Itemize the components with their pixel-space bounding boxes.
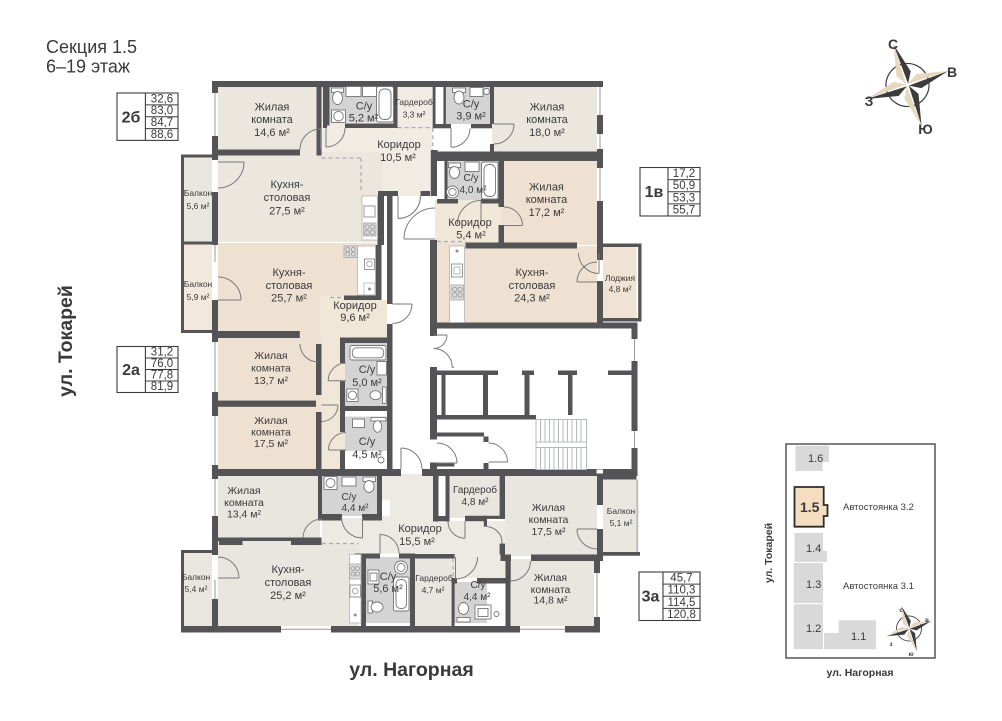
svg-text:1.1: 1.1 [851, 631, 866, 643]
svg-text:2б: 2б [122, 110, 141, 127]
svg-text:120,8: 120,8 [667, 609, 696, 621]
svg-text:Жилая: Жилая [255, 102, 290, 114]
svg-text:комната: комната [251, 363, 291, 375]
svg-text:4,7 м²: 4,7 м² [422, 585, 445, 595]
svg-text:Автостоянка 3.1: Автостоянка 3.1 [843, 581, 914, 592]
svg-text:Ю: Ю [918, 121, 932, 137]
svg-text:Кухня-: Кухня- [515, 267, 548, 279]
svg-text:1.5: 1.5 [800, 499, 820, 515]
svg-text:Гардероб: Гардероб [415, 573, 453, 583]
svg-text:9,6 м²: 9,6 м² [340, 312, 370, 324]
svg-text:в: в [925, 618, 929, 624]
svg-text:столовая: столовая [266, 280, 313, 292]
svg-text:77,8: 77,8 [151, 370, 173, 382]
svg-text:Кухня-: Кухня- [272, 267, 305, 279]
svg-text:81,9: 81,9 [151, 381, 173, 393]
svg-text:13,7 м²: 13,7 м² [254, 375, 289, 387]
svg-text:ул. Токарей: ул. Токарей [763, 523, 775, 583]
svg-text:5,9 м²: 5,9 м² [187, 292, 210, 302]
svg-text:5,6 м²: 5,6 м² [187, 201, 210, 211]
svg-text:Балкон: Балкон [184, 279, 213, 289]
svg-text:3,9 м²: 3,9 м² [456, 111, 486, 123]
svg-text:1.3: 1.3 [806, 579, 821, 591]
svg-text:С/у: С/у [359, 436, 376, 448]
svg-text:55,7: 55,7 [673, 205, 695, 217]
svg-text:ул. Нагорная: ул. Нагорная [349, 659, 473, 681]
svg-text:ю: ю [908, 652, 913, 658]
svg-text:столовая: столовая [264, 192, 311, 204]
svg-text:25,2 м²: 25,2 м² [270, 590, 306, 602]
svg-text:столовая: столовая [265, 577, 312, 589]
svg-text:5,4 м²: 5,4 м² [456, 230, 486, 242]
svg-text:88,6: 88,6 [151, 129, 173, 141]
svg-text:ул. Нагорная: ул. Нагорная [827, 667, 894, 679]
svg-text:Коридор: Коридор [448, 217, 491, 229]
svg-text:1.4: 1.4 [806, 543, 821, 555]
svg-text:1в: 1в [645, 184, 664, 201]
svg-text:Балкон: Балкон [182, 572, 211, 582]
svg-text:Секция 1.5: Секция 1.5 [46, 37, 137, 57]
svg-text:27,5 м²: 27,5 м² [269, 206, 305, 218]
svg-text:32,6: 32,6 [151, 93, 173, 105]
svg-text:10,5 м²: 10,5 м² [380, 152, 416, 164]
svg-text:З: З [865, 93, 874, 109]
svg-text:С/у: С/у [359, 364, 376, 376]
svg-text:17,5 м²: 17,5 м² [254, 438, 289, 450]
svg-text:Гардероб: Гардероб [453, 484, 497, 496]
svg-text:4,0 м²: 4,0 м² [460, 185, 488, 196]
svg-text:столовая: столовая [509, 280, 556, 292]
svg-text:Жилая: Жилая [534, 572, 567, 584]
svg-text:4,8 м²: 4,8 м² [609, 284, 632, 294]
svg-text:Жилая: Жилая [530, 102, 565, 114]
svg-text:Жилая: Жилая [227, 485, 260, 497]
svg-text:С/у: С/у [342, 492, 357, 503]
svg-text:комната: комната [526, 114, 568, 126]
svg-text:комната: комната [224, 497, 264, 509]
svg-text:з: з [890, 642, 893, 648]
svg-text:84,7: 84,7 [151, 117, 173, 129]
svg-text:5,0 м²: 5,0 м² [352, 377, 382, 389]
svg-text:Лоджия: Лоджия [605, 273, 636, 283]
svg-text:Автостоянка 3.2: Автостоянка 3.2 [843, 502, 914, 513]
svg-text:Гардероб: Гардероб [395, 97, 433, 107]
svg-text:18,0 м²: 18,0 м² [529, 127, 565, 139]
svg-text:С/у: С/у [471, 580, 486, 591]
svg-text:31,2: 31,2 [151, 347, 173, 359]
svg-text:С/у: С/у [356, 101, 373, 113]
svg-text:4,4 м²: 4,4 м² [464, 592, 492, 603]
svg-text:14,8 м²: 14,8 м² [533, 595, 568, 607]
svg-text:Коридор: Коридор [398, 523, 441, 535]
svg-text:ул. Токарей: ул. Токарей [55, 285, 77, 397]
svg-text:Балкон: Балкон [184, 188, 213, 198]
svg-text:С/у: С/у [463, 99, 480, 111]
svg-text:2а: 2а [122, 362, 140, 379]
svg-text:комната: комната [529, 514, 569, 526]
svg-text:15,5 м²: 15,5 м² [399, 536, 435, 548]
svg-text:Кухня-: Кухня- [270, 179, 303, 191]
svg-text:3,3 м²: 3,3 м² [403, 110, 426, 120]
svg-text:5,4 м²: 5,4 м² [185, 584, 208, 594]
svg-text:14,6 м²: 14,6 м² [254, 127, 290, 139]
svg-text:6–19 этаж: 6–19 этаж [46, 57, 130, 77]
svg-text:Балкон: Балкон [607, 506, 636, 516]
svg-text:50,9: 50,9 [673, 180, 695, 192]
svg-text:13,4 м²: 13,4 м² [227, 509, 262, 521]
svg-text:5,6 м²: 5,6 м² [373, 583, 403, 595]
svg-text:Коридор: Коридор [377, 139, 420, 151]
svg-text:комната: комната [251, 427, 291, 439]
svg-text:53,3: 53,3 [673, 192, 695, 204]
svg-text:24,3 м²: 24,3 м² [514, 293, 550, 305]
svg-text:4,4 м²: 4,4 м² [342, 503, 370, 514]
svg-text:76,0: 76,0 [151, 358, 173, 370]
svg-text:Жилая: Жилая [254, 350, 287, 362]
svg-text:17,2 м²: 17,2 м² [529, 207, 565, 219]
svg-text:3а: 3а [642, 589, 660, 606]
svg-text:83,0: 83,0 [151, 105, 173, 117]
svg-text:4,8 м²: 4,8 м² [462, 497, 490, 508]
svg-text:5,2 м²: 5,2 м² [349, 113, 379, 125]
svg-text:1.2: 1.2 [806, 623, 821, 635]
svg-text:Кухня-: Кухня- [271, 564, 304, 576]
svg-text:114,5: 114,5 [668, 597, 696, 609]
svg-text:5,1 м²: 5,1 м² [610, 518, 633, 528]
svg-text:Жилая: Жилая [532, 502, 565, 514]
svg-text:В: В [947, 64, 957, 80]
svg-text:С/у: С/у [380, 571, 397, 583]
svg-text:4,5 м²: 4,5 м² [352, 449, 382, 461]
svg-text:Коридор: Коридор [333, 300, 376, 312]
svg-text:25,7 м²: 25,7 м² [271, 293, 307, 305]
svg-text:17,2: 17,2 [673, 168, 695, 180]
svg-text:комната: комната [251, 114, 293, 126]
svg-text:комната: комната [526, 194, 568, 206]
svg-text:Жилая: Жилая [529, 182, 564, 194]
svg-text:Жилая: Жилая [254, 415, 287, 427]
svg-text:110,3: 110,3 [668, 585, 696, 597]
svg-text:1.6: 1.6 [808, 453, 823, 465]
svg-text:С: С [888, 36, 898, 52]
svg-text:С/у: С/у [464, 173, 479, 184]
svg-text:45,7: 45,7 [670, 573, 692, 585]
svg-text:17,5 м²: 17,5 м² [531, 526, 566, 538]
